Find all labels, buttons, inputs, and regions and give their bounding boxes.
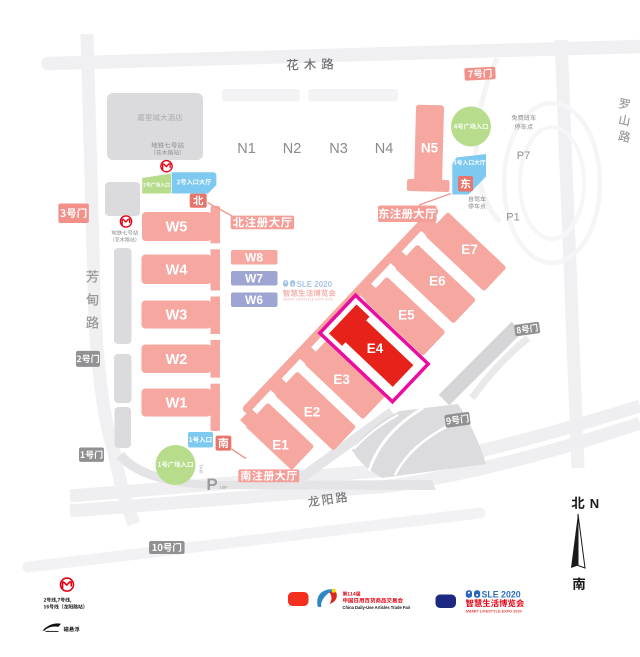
svg-text:N1: N1 (237, 141, 256, 157)
svg-text:E5: E5 (398, 307, 415, 322)
svg-text:E4: E4 (367, 341, 384, 356)
svg-text:SMART LIFESTYLE EXPO 2020: SMART LIFESTYLE EXPO 2020 (283, 297, 333, 301)
svg-text:SMART LIFESTYLE EXPO 2020: SMART LIFESTYLE EXPO 2020 (466, 609, 522, 613)
svg-text:N2: N2 (283, 141, 302, 157)
svg-text:N4: N4 (375, 141, 394, 157)
svg-text:P: P (206, 475, 217, 494)
svg-text:W4: W4 (166, 262, 188, 278)
svg-text:P1: P1 (506, 211, 519, 223)
svg-text:W6: W6 (245, 293, 263, 307)
svg-text:E6: E6 (429, 273, 446, 288)
svg-text:W3: W3 (166, 308, 188, 324)
svg-text:W2: W2 (166, 352, 188, 368)
svg-text:E3: E3 (333, 372, 350, 387)
svg-text:N5: N5 (421, 140, 439, 155)
svg-text:VIP: VIP (220, 485, 227, 490)
svg-text:E7: E7 (461, 242, 478, 257)
svg-text:China Daily-Use Articles Trade: China Daily-Use Articles Trade Fair (343, 605, 411, 610)
svg-text:W5: W5 (166, 220, 188, 236)
svg-text:W8: W8 (245, 250, 263, 264)
svg-text:W7: W7 (245, 271, 263, 285)
svg-text:SLE 2020: SLE 2020 (482, 589, 521, 599)
svg-text:W1: W1 (166, 396, 188, 412)
svg-text:P7: P7 (517, 150, 530, 162)
svg-text:E2: E2 (304, 404, 321, 419)
svg-text:E1: E1 (272, 437, 289, 452)
svg-text:SLE 2020: SLE 2020 (297, 280, 333, 289)
svg-text:N3: N3 (329, 141, 348, 157)
svg-text:TAXI: TAXI (199, 464, 204, 473)
svg-text:N: N (590, 496, 599, 511)
